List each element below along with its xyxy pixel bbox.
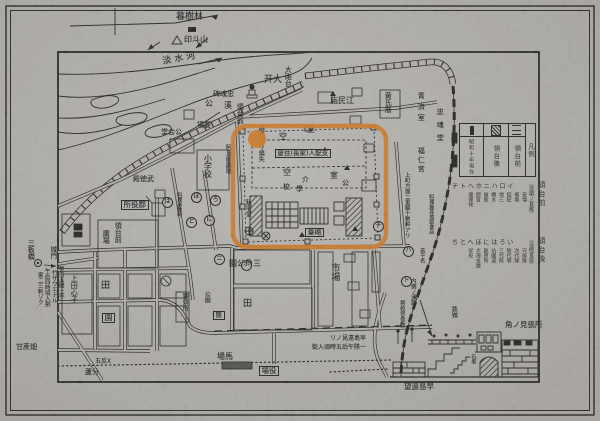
note-item: 安増 [521,192,526,207]
map-label: 上町方面ニ軍解十數軒アリ [403,172,409,238]
map-label: 开大 [264,76,282,85]
map-label: 警察所 [181,293,187,311]
map-label: 廣場 [102,230,109,244]
note-item: 遵理快 [467,192,472,207]
note-item: 次代隊 [513,248,518,268]
map-label: 田 [243,300,252,309]
map-marker-circled: は [162,197,173,208]
legend-column: 領台前 [509,124,526,176]
legend-box: 昭和十年現在領台後領台前凡例 [459,123,536,177]
map-label: 蘆分 [85,369,99,376]
note-bracket-label: （当時官廈） [528,237,535,268]
map-label: 領台前 [236,103,243,124]
note-item: 大海支廳 [475,248,480,268]
legend-symbol-lines [509,124,525,137]
map-label: 竹ザウエテル [50,270,56,303]
map-label: 公 [205,100,213,108]
map-label: 場要 [197,122,211,129]
legend-label: 領台前 [512,137,522,176]
map-label: 園 [102,313,115,323]
map-label: 角ノ見張所 [505,321,543,329]
map-label: 甘蔗畑 [16,344,37,351]
legend-label: 昭和十年現在 [468,137,475,176]
map-label: 料理屋數軒 [176,192,181,217]
map-label: 溪 [224,102,232,110]
map-label: 校 [283,184,290,191]
map-label: 小学校 [203,154,211,178]
map-label: 學 [296,186,303,193]
note-item: 複堆 [513,192,518,207]
legend-label: 凡例 [526,124,536,176]
map-label: 印斗山 [184,36,208,44]
map-label: 将校官舎敷 [398,300,404,328]
note-item: 三代既 [498,248,503,268]
map-label: 街入頃時五后午隊一 [312,345,366,351]
map-label: 殿徳武 [133,176,154,183]
note-item: 畝房所 [482,248,487,268]
map-marker-circled: ハ [403,246,414,257]
map-label: 臺砲 [305,228,324,237]
map-label: 五反X [95,359,111,365]
map-label: 私宅室 [244,199,250,217]
map-marker-circled: に [204,215,215,226]
map-label: 大砲台 [284,66,291,87]
map-label: 黄氏厝 [384,92,391,113]
map-label: 料理屋其他飲食店 [428,194,433,234]
note-item: 屋堅 [482,192,487,207]
map-marker-circled: ホ [241,260,252,271]
map-label: 室 [330,172,338,180]
note-item: 錠紀 [506,192,511,207]
legend-symbol-hatch [484,124,507,137]
map-label: 碑魂忠 [213,91,234,98]
legend-symbol-solid [460,124,483,137]
legend-label: 領台後 [491,137,501,176]
map-label: 場馬 [217,353,233,361]
legend-note-pre: 領台前（清朝ノ官廨）チトヘホニハロイ安増複堆錠紀地三棚木屋堅厨官遵理快 [452,181,547,216]
map-label: 淡水河 [162,52,199,67]
map-label: 石垠 [470,354,475,364]
note-item: 智代等 [506,248,511,268]
note-header: ちとへほにはろい [452,237,526,246]
note-item: 守候隊 [521,248,526,268]
legend-note-post: 領台後（当時官廈）ちとへほにはろい守候隊次代隊智代等三代既坑園速畝房所大海支廳学… [452,237,547,268]
note-side-label: 領台前 [537,181,547,216]
note-header: チトヘホニハロイ [452,181,526,190]
map-marker-circled: と [186,217,197,228]
note-item: 厨官 [475,192,480,207]
map-marker-circled: ニ [214,254,225,265]
map-label: 公園 [203,291,209,303]
map-label: リノ見遠島早 [330,336,366,342]
map-label: 空 [279,133,287,141]
note-bracket-label: （清朝ノ官廨） [528,181,535,216]
map-label: 介 [302,177,309,184]
map-label: 庙民江 [330,97,354,105]
map-label: 領台前 [114,222,121,243]
map-label: 鉄嶺 [450,306,456,318]
map-label: 田 [101,282,110,291]
map-marker-circled: ト [401,276,412,287]
legend-column: 昭和十年現在 [460,124,484,176]
legend-column: 凡例 [526,124,535,176]
note-item: 学校 [467,248,472,268]
map-label: 公 [342,180,349,187]
map-label: 阿旦前廣場 [224,144,230,174]
map-label: 上田心子 [70,275,77,303]
map-label: 福仁宮 [417,147,424,174]
map-label: 場役 [259,366,279,376]
map-label: 匯 [213,311,225,320]
map-label: 青済室 [417,92,424,125]
map-marker-circled: ほ [191,192,202,203]
map-label: 忠魂堂 [436,108,443,147]
map-label: 所役郡 [121,200,149,210]
map-label: 望遠島早 [404,383,434,391]
map-label: 市場 [329,263,338,281]
note-side-label: 領台後 [537,237,547,268]
map-label: 厦住(長家)人配支 [275,149,331,158]
map-label: 午后四時頃入割 [43,268,49,307]
map-label: 家二三軒ゾク [36,272,42,305]
map-label: 砲擊在リ燒失 [257,126,263,162]
map-label: 整市五間土手 [57,266,63,299]
map-label: 空 [283,169,291,177]
map-marker-circled: チ [373,221,384,232]
legend-column: 領台後 [484,124,508,176]
map-marker-circled: ろ [210,195,221,206]
note-item: 棚木 [490,192,495,207]
scanned-map-photo: 暮樹林印斗山淡水河公溪碑魂忠領台前場要开大大砲台堂会公小学校阿旦前廣場殿徳武所役… [0,0,600,421]
map-label: 暮樹林 [176,13,203,22]
note-item: 坑園速 [490,248,495,268]
map-label: 堂会公 [161,129,182,136]
map-label: 三板橋 [27,239,34,260]
map-label: 城門 [49,246,56,259]
note-item: 地三 [498,192,503,207]
map-label: 若干名 [419,248,424,263]
map-label: 室 [307,126,315,134]
